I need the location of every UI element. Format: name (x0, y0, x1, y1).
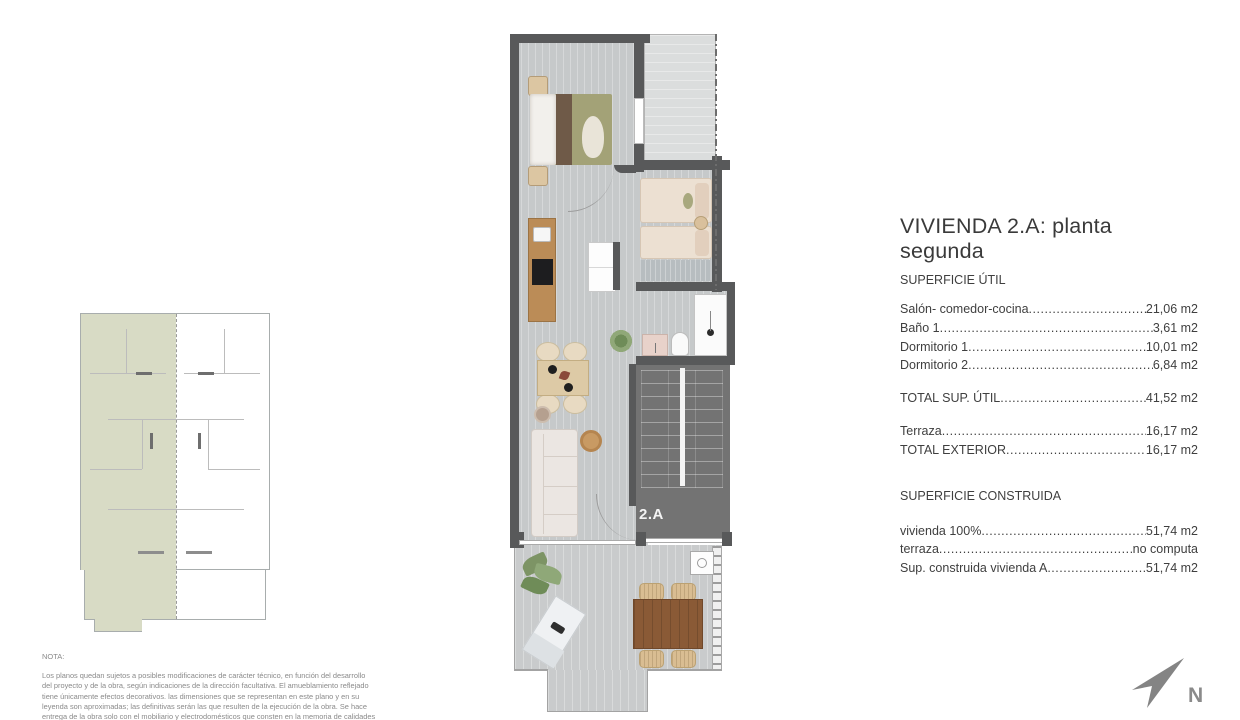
superficie-util-rows: Salón- comedor-cocina21,06 m2 Baño 13,61… (900, 300, 1198, 460)
area-label: Dormitorio 1 (900, 338, 968, 357)
table-centerpiece (559, 370, 571, 382)
terrace-bottom-edge (647, 669, 722, 671)
dining-table (537, 360, 589, 396)
area-row: Dormitorio 26,84 m2 (900, 356, 1198, 375)
single-bed (640, 226, 712, 259)
wall-bedroom2-right (712, 156, 722, 292)
terrace-chair (671, 650, 696, 668)
page-title: VIVIENDA 2.A: planta segunda (900, 214, 1198, 264)
terrace-floor-extension (547, 670, 648, 712)
vanity-tap (655, 343, 656, 353)
nota-line: del proyecto y de la obra, según indicac… (42, 681, 388, 691)
area-row: Sup. construida vivienda A51,74 m2 (900, 559, 1198, 578)
area-label: Salón- comedor-cocina (900, 300, 1029, 319)
area-label: vivienda 100% (900, 522, 981, 541)
keyplan-highlight (81, 314, 176, 570)
terrace-light-fixture (690, 551, 714, 575)
wall-hall-curve (614, 165, 636, 173)
area-value: 3,61 m2 (1153, 319, 1198, 338)
shower-arm (710, 311, 711, 331)
nightstand (528, 76, 548, 96)
indoor-plant (608, 328, 634, 354)
wall-hall-bedroom2 (613, 242, 620, 290)
keyplan-door-mark (186, 551, 212, 554)
dot-leader (940, 319, 1153, 338)
key-plan (80, 313, 272, 635)
north-label: N (1188, 684, 1203, 708)
floor-plan: 2.A (508, 32, 740, 716)
unit-label: 2.A (639, 506, 664, 523)
dining-chair (536, 342, 560, 362)
total-util-row: TOTAL SUP. ÚTIL41,52 m2 (900, 389, 1198, 408)
sofa (531, 429, 578, 537)
dot-leader (1047, 559, 1146, 578)
bed-blanket (556, 94, 572, 165)
total-exterior-row: TOTAL EXTERIOR16,17 m2 (900, 441, 1198, 460)
wall-stair-bottom-jamb (636, 532, 646, 546)
dot-leader (981, 522, 1146, 541)
window-bedroom1 (634, 98, 644, 144)
dot-leader (1029, 300, 1146, 319)
nota-line: entrega de la obra solo con el mobiliari… (42, 712, 388, 720)
keyplan-wall-mark (136, 372, 152, 375)
nightstand (528, 166, 548, 186)
area-row: Salón- comedor-cocina21,06 m2 (900, 300, 1198, 319)
wall-bath-right (727, 282, 735, 365)
nota-heading: NOTA: (42, 652, 388, 661)
wall-left (510, 34, 519, 546)
wall-bedroom1-right (634, 34, 644, 98)
keyplan-line (184, 373, 260, 374)
legend: VIVIENDA 2.A: planta segunda SUPERFICIE … (900, 214, 1198, 578)
keyplan-line (142, 419, 143, 469)
area-value: 51,74 m2 (1146, 559, 1198, 578)
keyplan-wall-mark (198, 433, 201, 449)
kitchen-island (588, 242, 616, 292)
superficie-construida-heading: SUPERFICIE CONSTRUIDA (900, 489, 1198, 503)
boundary-dashdot-line (715, 34, 717, 290)
area-row: Terraza16,17 m2 (900, 422, 1198, 441)
area-value: 16,17 m2 (1146, 422, 1198, 441)
area-row: Dormitorio 110,01 m2 (900, 338, 1198, 357)
terrace-plant (518, 550, 564, 600)
double-bed (530, 94, 612, 165)
area-row: vivienda 100%51,74 m2 (900, 522, 1198, 541)
area-value: 51,74 m2 (1146, 522, 1198, 541)
dot-leader (968, 338, 1146, 357)
toilet (671, 332, 689, 356)
nota-line: leyenda son aproximadas; las definitivas… (42, 702, 388, 712)
keyplan-line (176, 419, 244, 420)
dot-leader (942, 422, 1146, 441)
area-label: TOTAL SUP. ÚTIL (900, 389, 1000, 408)
keyplan-highlight (85, 570, 176, 619)
keyplan-party-wall-line (176, 314, 177, 619)
keyplan-line (90, 469, 142, 470)
bed-throw (582, 116, 604, 158)
adjacent-terrace-area (644, 34, 716, 164)
keyplan-door-mark (138, 551, 164, 554)
kitchen-counter (528, 218, 556, 322)
terrace-bottom-edge (514, 669, 548, 671)
keyplan-line (208, 469, 260, 470)
area-value: 10,01 m2 (1146, 338, 1198, 357)
area-value: no computa (1133, 540, 1198, 559)
bed-accent (683, 193, 693, 209)
keyplan-wall-mark (150, 433, 153, 449)
superficie-util-heading: SUPERFICIE ÚTIL (900, 273, 1198, 287)
terrace-table (633, 599, 703, 649)
bed-pillow (695, 230, 709, 256)
wall-stair-left (629, 364, 636, 506)
keyplan-line (90, 373, 166, 374)
keyplan-line (224, 329, 225, 373)
sofa-armrest-line (543, 434, 544, 534)
superficie-construida-rows: vivienda 100%51,74 m2 terrazano computa … (900, 522, 1198, 578)
nota-block: NOTA: Los planos quedan sujetos a posibl… (42, 652, 388, 720)
area-label: Terraza (900, 422, 942, 441)
place-setting (564, 383, 573, 392)
bed-pillow (695, 183, 709, 219)
bed-pillows (530, 94, 556, 165)
keyplan-line (126, 329, 127, 373)
area-label: Sup. construida vivienda A (900, 559, 1047, 578)
area-label: Baño 1 (900, 319, 940, 338)
keyplan-highlight (95, 619, 142, 631)
place-setting (548, 365, 557, 374)
shower (694, 294, 727, 356)
keyplan-wall-mark (198, 372, 214, 375)
kitchen-sink (533, 227, 551, 242)
area-label: TOTAL EXTERIOR (900, 441, 1006, 460)
stair-railing (680, 368, 685, 486)
lounger-item (550, 621, 566, 634)
island-divider (589, 267, 615, 268)
north-arrow-icon (1128, 652, 1188, 712)
terrace-glass-door (644, 538, 724, 543)
area-label: terraza (900, 540, 939, 559)
area-row: terrazano computa (900, 540, 1198, 559)
sofa-cushion-line (544, 514, 577, 515)
area-label: Dormitorio 2 (900, 356, 968, 375)
round-nightstand (694, 216, 708, 230)
keyplan-line (108, 509, 176, 510)
kitchen-cooktop (532, 259, 553, 285)
area-row: Baño 13,61 m2 (900, 319, 1198, 338)
wall-top (510, 34, 650, 43)
area-value: 16,17 m2 (1146, 441, 1198, 460)
area-value: 21,06 m2 (1146, 300, 1198, 319)
dot-leader (1000, 389, 1146, 408)
bedroom2-rug (640, 260, 710, 281)
keyplan-line (208, 419, 209, 469)
terrace-chair (639, 650, 664, 668)
wall-bedroom2-bottom (636, 282, 735, 291)
wall-stair-bottom-jamb (722, 532, 732, 546)
area-value: 41,52 m2 (1146, 389, 1198, 408)
fixture-circle (697, 558, 707, 568)
round-coffee-table (580, 430, 602, 452)
nota-line: Los planos quedan sujetos a posibles mod… (42, 671, 388, 681)
dot-leader (968, 356, 1153, 375)
terrace-glass-door (519, 540, 636, 545)
sofa-cushion-line (544, 486, 577, 487)
nota-line: tiene únicamente efectos decorativos. la… (42, 692, 388, 702)
pouf (534, 406, 551, 423)
dining-chair (563, 394, 587, 414)
keyplan-line (176, 509, 244, 510)
sofa-cushion-line (544, 456, 577, 457)
dot-leader (1006, 441, 1146, 460)
dining-chair (563, 342, 587, 362)
bath-vanity (642, 334, 668, 356)
wall-bath-bottom (636, 356, 735, 365)
dot-leader (939, 540, 1133, 559)
area-value: 6,84 m2 (1153, 356, 1198, 375)
north-indicator: N (1128, 652, 1228, 712)
